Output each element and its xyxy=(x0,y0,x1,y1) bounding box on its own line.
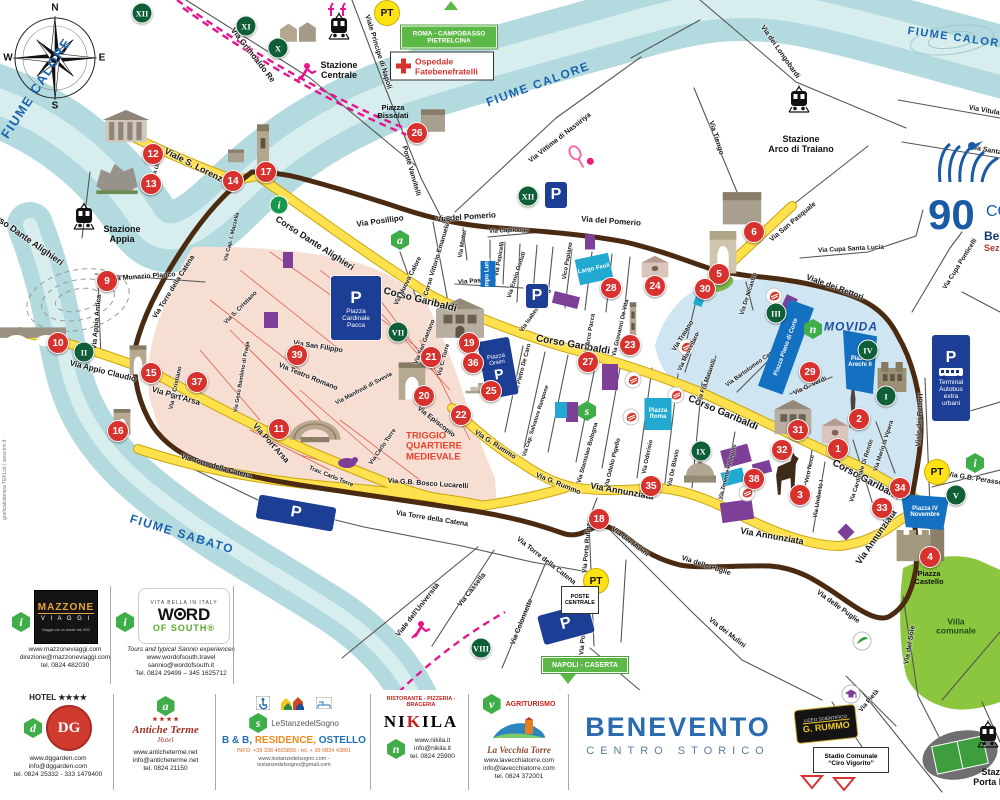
poi-badge-red: 20 xyxy=(413,385,435,407)
pt-post-badge: PT xyxy=(374,0,400,26)
terme-logo: Antiche Terme Hotel xyxy=(118,724,213,744)
monument-block-photo xyxy=(228,150,244,163)
poi-badge-red: 34 xyxy=(889,477,911,499)
poi-badge-red: 35 xyxy=(640,475,662,497)
dg-contacts: www.dggarden.com info@dggarden.com tel. … xyxy=(6,755,110,779)
benevento-tourist-map: NESWFIUME CALOREFIUME CALOREFIUME CALORE… xyxy=(0,0,1000,800)
graduation-cap-icon xyxy=(842,685,860,703)
monument-badge-roman: III xyxy=(766,303,787,324)
sign-arrow-up xyxy=(444,1,458,10)
poi-badge-red: 23 xyxy=(619,334,641,356)
nikila-header: RISTORANTE - PIZZERIA - BRACERIA xyxy=(376,696,466,708)
poi-badge-red: 24 xyxy=(644,275,666,297)
tourist-info-marker: i xyxy=(270,196,289,215)
map-title-line2: CENTRO STORICO xyxy=(578,745,778,757)
poste-centrale-box: POSTECENTRALE xyxy=(561,586,599,614)
poi-badge-red: 30 xyxy=(694,278,716,300)
station-label: StazioneCentrale xyxy=(320,60,357,80)
villa-comunale-label: Villa comunale xyxy=(934,618,978,637)
logo90-number: 90 xyxy=(928,191,975,238)
houses-icon xyxy=(280,695,306,711)
movida-icon xyxy=(623,409,639,425)
nikila-logo: NIKILA xyxy=(376,712,466,732)
station-label: StazioneArco di Traiano xyxy=(768,134,834,154)
poi-badge-red: 37 xyxy=(186,371,208,393)
terme-hex-icon: a xyxy=(157,696,175,716)
compass-letter: W xyxy=(3,53,12,64)
legend-antiche-terme: a ★ ★ ★ ★ Antiche Terme Hotel www.antich… xyxy=(118,690,213,800)
word-of-south-logo: VITA BELLA IN ITALY WRD OF SOUTH® xyxy=(138,588,230,644)
runner-icon xyxy=(412,621,430,638)
bed-icon xyxy=(316,697,332,709)
poi-badge-red: 19 xyxy=(458,332,480,354)
piazza-label: PiazzaBissolati xyxy=(377,104,408,121)
poi-badge-red: 32 xyxy=(771,439,793,461)
vecchia-header: AGRITURISMO xyxy=(506,701,556,708)
vecchia-logo-icon xyxy=(491,716,547,740)
poi-badge-red: 9 xyxy=(96,270,118,292)
monument-badge-roman: IV xyxy=(858,340,879,361)
stanze-web: www.lestanzedelsogno.com - lestanzedelso… xyxy=(222,756,366,768)
legend-dg-garden: HOTEL ★★★★ d DG www.dggarden.com info@dg… xyxy=(6,690,110,800)
monument-block-photo xyxy=(723,192,761,224)
school-rummo-box: LICEO SCIENTIFICOG. RUMMO xyxy=(793,704,858,744)
parking-p: P xyxy=(289,503,303,523)
eagle-icon xyxy=(928,136,1000,186)
sign-arrow-down xyxy=(560,674,576,684)
monument-badge-roman: VIII xyxy=(471,638,492,659)
wheelchair-icon xyxy=(256,696,270,710)
legend-vecchia-torre: v AGRITURISMO La Vecchia Torre www.lavec… xyxy=(473,690,565,800)
compass-letter: N xyxy=(51,3,58,14)
station-label: StazioneAppia xyxy=(103,224,140,244)
stanze-name: LeStanzedelSogno xyxy=(271,719,339,728)
red-cross-icon xyxy=(396,59,411,74)
monument-badge-roman: VII xyxy=(388,322,409,343)
wos-contacts: Tours and typical Sannio experiences www… xyxy=(125,646,237,678)
vecchia-name: La Vecchia Torre xyxy=(473,745,565,755)
poi-badge-red: 39 xyxy=(286,344,308,366)
parking-piazza-cardinale-pacca: PPiazzaCardinalePacca xyxy=(331,276,381,340)
legend-nikila: RISTORANTE - PIZZERIA - BRACERIA NIKILA … xyxy=(376,690,466,800)
poi-badge-red: 22 xyxy=(450,404,472,426)
monument-badge-roman: IX xyxy=(691,441,712,462)
piazza-box-label: Campo Lungo xyxy=(485,254,491,294)
dg-hex-icon: d xyxy=(24,718,42,738)
green-swoosh-icon xyxy=(853,632,871,650)
train-station-icon xyxy=(789,86,809,113)
napoli-caserta-sign: NAPOLI - CASERTA xyxy=(542,657,628,673)
pt-post-badge: PT xyxy=(924,459,950,485)
monument-badge-roman: XII xyxy=(132,3,153,24)
piazza-box: Campo Lungo xyxy=(481,261,496,287)
poi-badge-red: 3 xyxy=(789,484,811,506)
movida-icon xyxy=(625,372,641,388)
dg-logo: DG xyxy=(46,705,92,751)
piazza-box: Piazza Roma xyxy=(645,398,672,430)
walkers-icon xyxy=(328,3,346,16)
piazza-box-label: Largo Feoli xyxy=(578,263,611,276)
legend-stanze: s LeStanzedelSogno B & B, RESIDENCE, OST… xyxy=(222,690,366,800)
compass-letter: S xyxy=(52,101,59,112)
piazza-box: Piazza IV Novembre xyxy=(901,494,949,530)
poi-badge-red: 27 xyxy=(577,351,599,373)
poi-badge-red: 31 xyxy=(787,419,809,441)
map-title-line1: BENEVENTO xyxy=(578,712,778,743)
poi-badge-red: 14 xyxy=(222,170,244,192)
vecchia-hex-icon: v xyxy=(483,694,501,714)
mazzone-contacts: www.mazzoneviaggi.com direzione@mazzonev… xyxy=(10,646,120,670)
poi-badge-red: 18 xyxy=(588,508,610,530)
mazzone-name: MAZZONE xyxy=(38,602,94,614)
train-station-icon xyxy=(329,13,349,40)
route-triangles xyxy=(802,776,854,790)
poi-badge-red: 13 xyxy=(140,173,162,195)
poi-badge-red: 1 xyxy=(827,438,849,460)
monument-badge-roman: XI xyxy=(236,16,257,37)
divider xyxy=(113,694,114,790)
divider xyxy=(215,694,216,790)
river-calore xyxy=(0,5,1000,237)
poi-badge-red: 16 xyxy=(107,420,129,442)
piazza-box-label: Piazza Roma xyxy=(645,408,672,420)
poi-badge-red: 33 xyxy=(871,497,893,519)
poi-badge-red: 29 xyxy=(799,361,821,383)
monument-temple-photo xyxy=(103,110,150,142)
roma-campobasso-sign: ROMA - CAMPOBASSOPIETRELCINA xyxy=(401,26,497,49)
poi-badge-red: 38 xyxy=(743,468,765,490)
confindustria-90-logo: 90 CO Ben Sezio xyxy=(928,136,1000,246)
parking-p: P xyxy=(551,186,562,204)
parking-box: P xyxy=(526,284,548,308)
terme-contacts: www.anticheterme.net info@anticheterme.n… xyxy=(118,749,213,773)
ospedale-sign: OspedaleFatebenefratelli xyxy=(390,52,494,81)
poi-badge-red: 6 xyxy=(743,221,765,243)
monument-badge-roman: V xyxy=(946,485,967,506)
monument-dome-photo xyxy=(684,458,716,482)
divider xyxy=(233,586,234,684)
poi-badge-red: 28 xyxy=(600,277,622,299)
parking-p: P xyxy=(559,614,574,634)
poi-badge-red: 2 xyxy=(848,408,870,430)
info-partners: i MAZZONE V I A G G I Viaggia con un lea… xyxy=(0,582,240,688)
poi-badge-red: 4 xyxy=(919,546,941,568)
logo90-sez: Sezio xyxy=(984,243,1000,253)
monument-badge-roman: II xyxy=(74,342,95,363)
poi-badge-red: 25 xyxy=(480,380,502,402)
parking-box: P xyxy=(545,182,567,208)
poi-badge-red: 17 xyxy=(255,161,277,183)
piazza-box-label: Piazza IV Novembre xyxy=(901,506,949,518)
info-icon-hex: i xyxy=(12,612,30,632)
poi-badge-red: 36 xyxy=(462,352,484,374)
divider xyxy=(568,694,569,790)
poi-badge-red: 10 xyxy=(47,332,69,354)
info-icon-hex: i xyxy=(116,612,134,632)
mazzone-logo: MAZZONE V I A G G I Viaggia con un leade… xyxy=(34,590,98,644)
poi-badge-red: 15 xyxy=(140,362,162,384)
wos-globe-icon xyxy=(174,608,186,620)
poi-badge-red: 21 xyxy=(420,346,442,368)
tennis-icon xyxy=(567,140,595,171)
divider xyxy=(110,586,111,684)
monument-houses-photo xyxy=(280,22,316,42)
poi-badge-red: 12 xyxy=(142,143,164,165)
poi-badge-red: 26 xyxy=(406,122,428,144)
station-label: StazionePorta Rufina xyxy=(973,767,1000,787)
wos-sub: OF SOUTH® xyxy=(153,623,215,633)
nikila-hex-icon: n xyxy=(387,739,405,759)
parking-p: P xyxy=(532,287,543,305)
stanze-info: INFO: +39 338 4603859 - tel. + 39 0824 4… xyxy=(222,748,366,754)
mazzone-sub: V I A G G I xyxy=(41,616,91,622)
mazzone-tag: Viaggia con un leader dal 1922 xyxy=(42,628,90,632)
stadium-label-box: Stadio Comunale“Ciro Vigorito” xyxy=(813,747,889,773)
monument-badge-roman: I xyxy=(876,386,897,407)
map-title: BENEVENTO CENTRO STORICO xyxy=(578,712,778,757)
vecchia-contacts: www.lavecchiatorre.com info@lavecchiator… xyxy=(473,757,565,781)
divider xyxy=(468,694,469,790)
nikila-contacts: www.nikila.it info@nikila.it tel. 0824 2… xyxy=(410,737,455,761)
compass-letter: E xyxy=(99,53,106,64)
poi-badge-red: 11 xyxy=(268,418,290,440)
piazza-label: PiazzaCastello xyxy=(914,570,943,587)
monument-badge-roman: X xyxy=(268,38,289,59)
monument-badge-roman: XII xyxy=(518,186,539,207)
logo90-co: CO xyxy=(986,203,1000,221)
stanze-hex-icon: s xyxy=(249,713,267,733)
dg-stars: HOTEL ★★★★ xyxy=(6,694,110,702)
runner-icon xyxy=(298,63,316,80)
bus-icon xyxy=(938,367,964,379)
monument-tower-photo xyxy=(257,124,269,165)
credits-text: grafica&stampa TEKLcè | www.tmi.it xyxy=(2,440,8,520)
divider xyxy=(370,694,371,790)
terminal-autobus-box: P TerminalAutobusextraurbani xyxy=(932,335,970,421)
